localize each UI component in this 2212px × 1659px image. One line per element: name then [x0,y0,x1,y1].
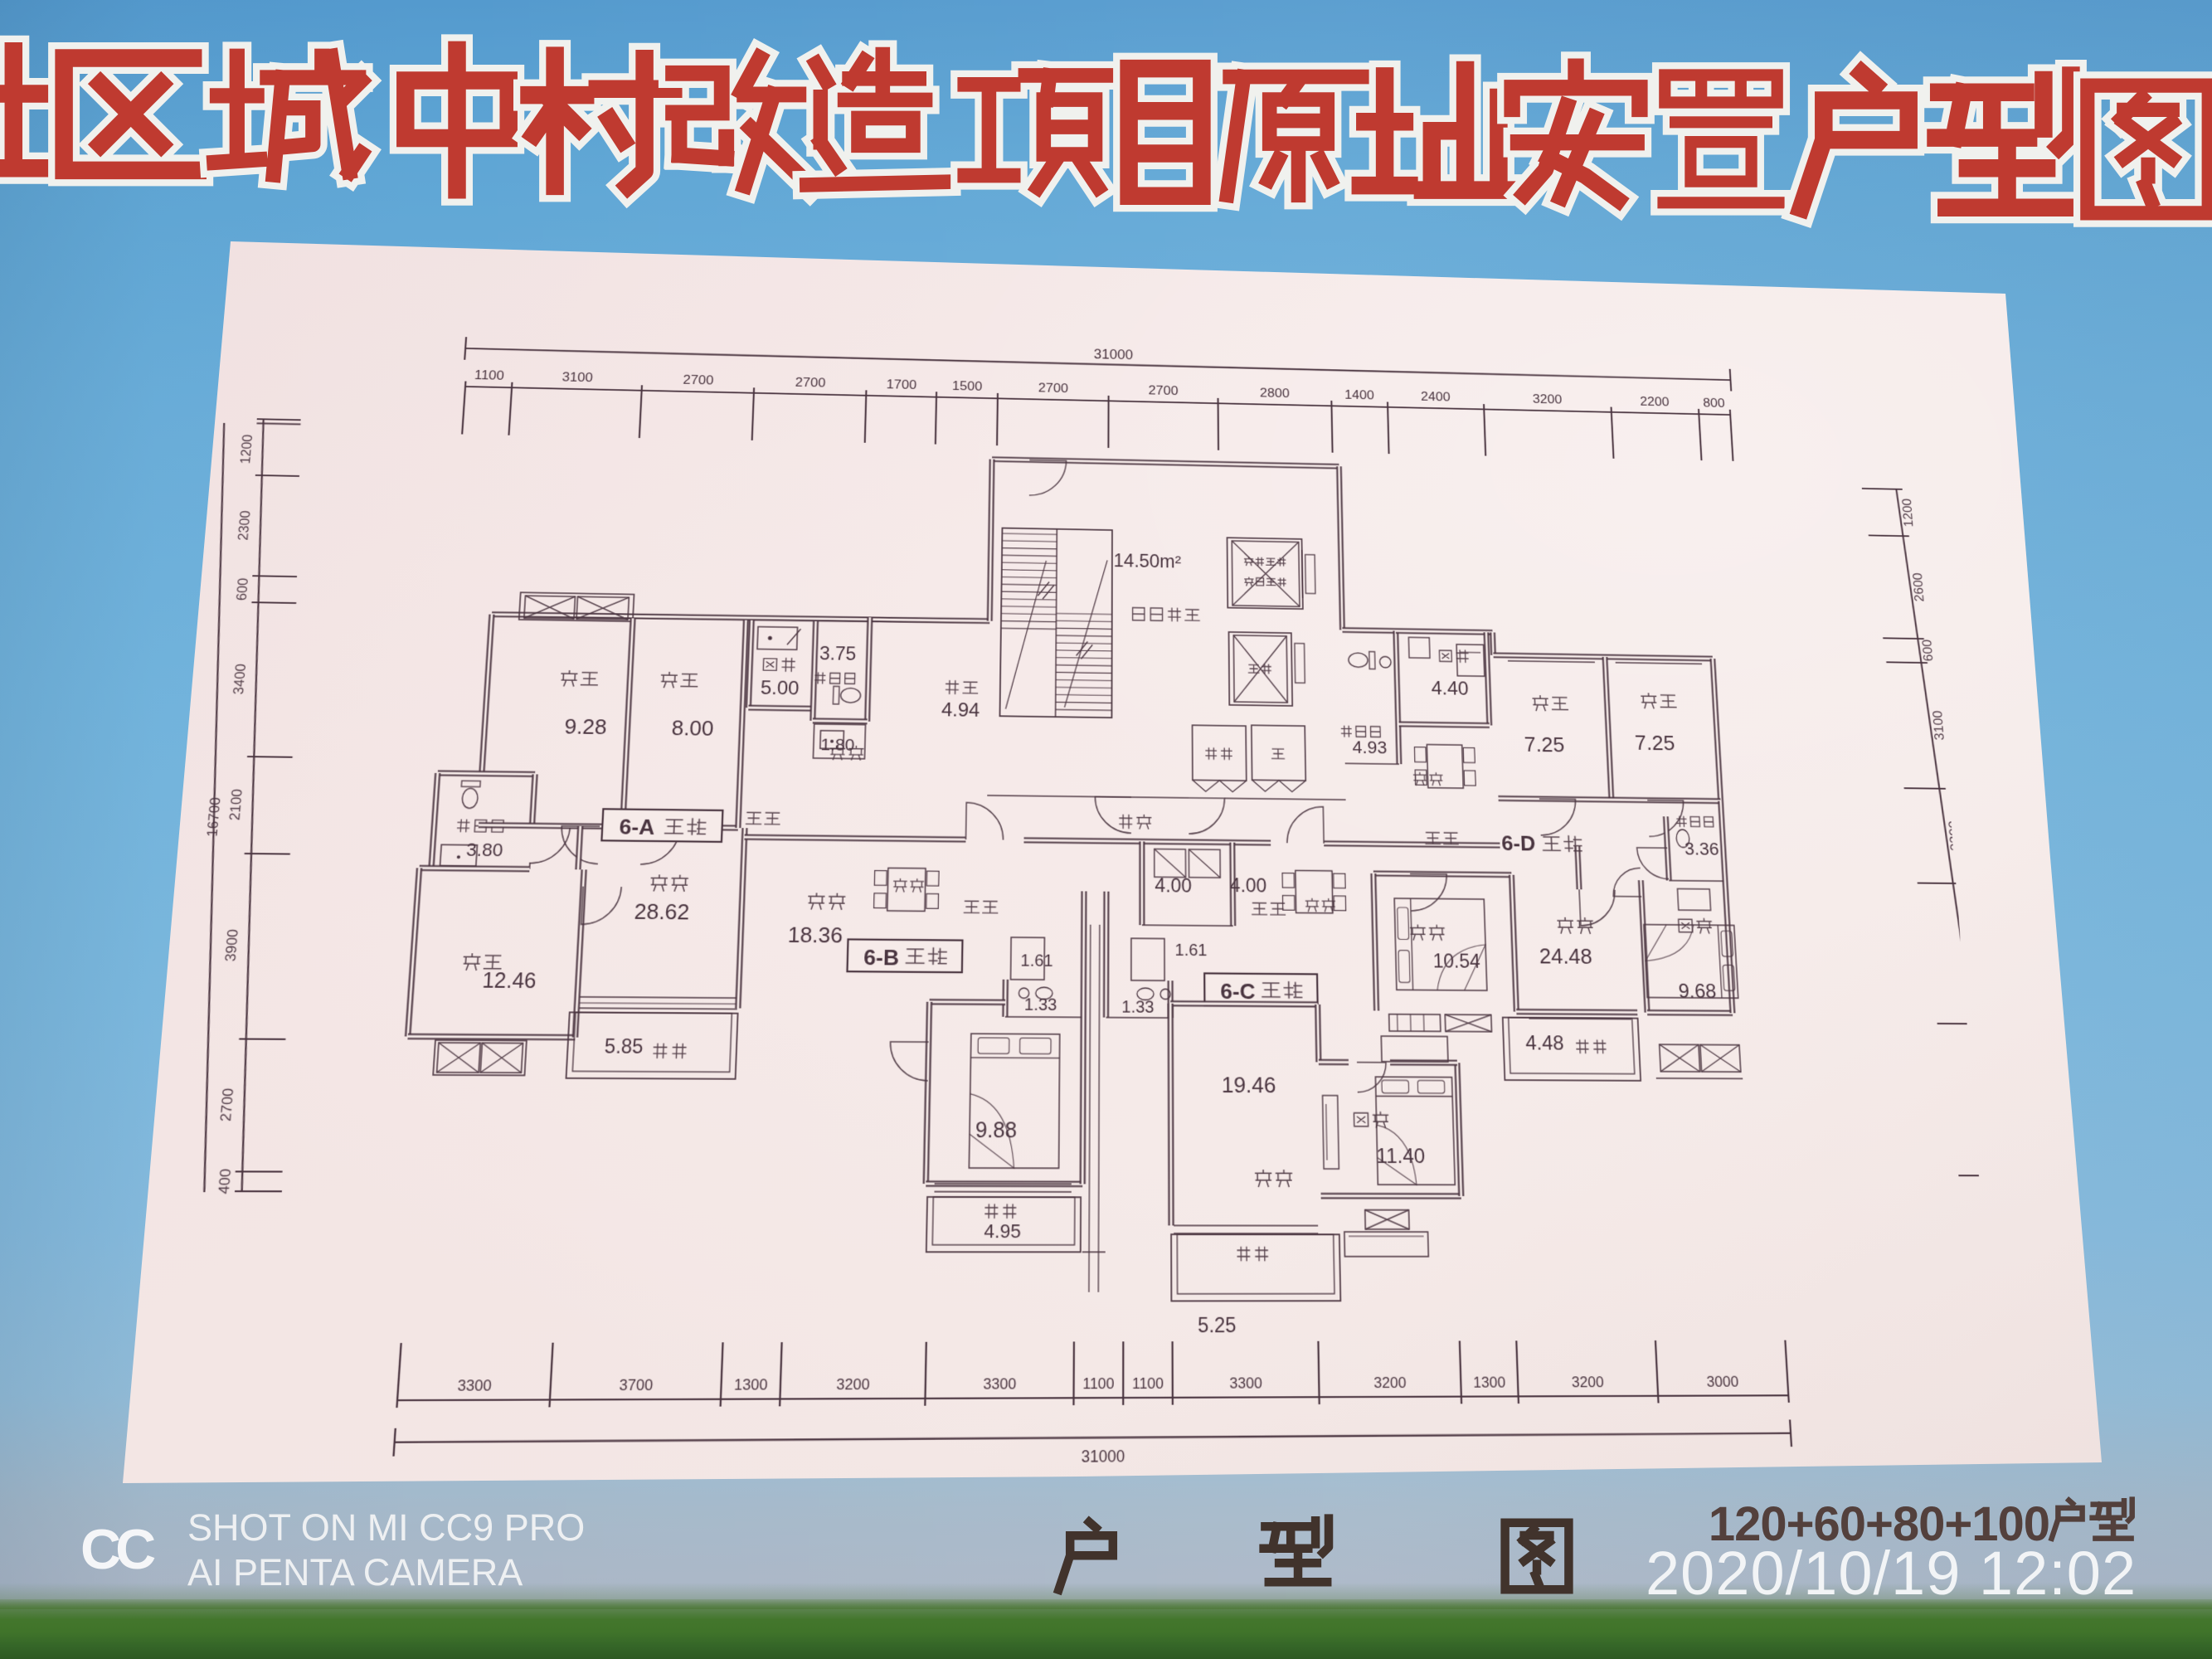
svg-text:2800: 2800 [1260,386,1290,401]
svg-text:2700: 2700 [1149,383,1179,398]
svg-text:3100: 3100 [562,370,593,385]
svg-text:6-D: 6-D [1501,832,1536,855]
svg-text:2200: 2200 [1640,394,1670,409]
svg-text:9.28: 9.28 [564,716,608,740]
svg-text:600: 600 [1919,640,1936,662]
svg-text:8.00: 8.00 [671,717,714,741]
svg-text:19.46: 19.46 [1222,1073,1276,1098]
svg-text:1500: 1500 [952,379,983,394]
svg-text:400: 400 [216,1169,235,1194]
svg-text:6-B: 6-B [863,946,899,971]
svg-text:4.00: 4.00 [1230,874,1267,897]
svg-text:1100: 1100 [474,367,504,382]
svg-text:11.40: 11.40 [1376,1144,1425,1168]
svg-text:4.93: 4.93 [1352,737,1387,757]
svg-text:5.85: 5.85 [604,1035,644,1058]
svg-text:1.61: 1.61 [1175,941,1208,961]
svg-text:1100: 1100 [1082,1375,1114,1393]
svg-text:2300: 2300 [235,510,253,540]
svg-text:5.25: 5.25 [1198,1313,1236,1337]
svg-text:1700: 1700 [887,377,917,392]
svg-text:AI PENTA CAMERA: AI PENTA CAMERA [187,1551,523,1593]
svg-text:1.61: 1.61 [1020,951,1053,971]
svg-text:2700: 2700 [683,372,714,387]
svg-text:3.80: 3.80 [465,840,503,861]
svg-text:14.50m²: 14.50m² [1114,550,1181,572]
svg-text:3700: 3700 [619,1377,654,1394]
svg-text:18.36: 18.36 [787,923,843,948]
svg-text:1.33: 1.33 [1121,998,1154,1017]
svg-text:1200: 1200 [1899,499,1916,528]
svg-text:16700: 16700 [204,797,224,837]
svg-text:3300: 3300 [983,1375,1016,1393]
svg-text:3200: 3200 [836,1376,870,1394]
svg-text:6-C: 6-C [1220,980,1255,1004]
svg-text:24.48: 24.48 [1539,945,1592,969]
svg-text:4.94: 4.94 [941,698,980,721]
svg-text:3.36: 3.36 [1685,839,1720,859]
svg-text:7.25: 7.25 [1634,732,1675,755]
svg-text:1400: 1400 [1344,387,1374,402]
svg-text:2400: 2400 [1421,389,1451,404]
svg-text:9.68: 9.68 [1678,979,1717,1002]
svg-text:4.95: 4.95 [984,1221,1021,1243]
svg-text:SHOT ON MI CC9 PRO: SHOT ON MI CC9 PRO [187,1506,585,1549]
svg-text:7.25: 7.25 [1524,733,1565,757]
svg-text:2100: 2100 [226,789,246,820]
svg-text:4.40: 4.40 [1431,677,1469,699]
svg-text:4.48: 4.48 [1525,1031,1564,1054]
svg-text:3000: 3000 [1706,1374,1738,1391]
svg-text:1300: 1300 [734,1376,768,1394]
svg-text:4.00: 4.00 [1155,874,1192,897]
svg-text:2700: 2700 [217,1088,237,1121]
svg-text:6-A: 6-A [619,815,655,839]
svg-text:12.46: 12.46 [482,970,537,994]
svg-text:3400: 3400 [231,664,250,695]
svg-text:28.62: 28.62 [634,900,690,925]
svg-text:600: 600 [233,578,251,601]
svg-text:800: 800 [1703,396,1725,411]
svg-text:1200: 1200 [237,435,255,465]
svg-text:2700: 2700 [795,375,826,390]
svg-text:CC: CC [80,1518,155,1581]
svg-text:3200: 3200 [1572,1374,1604,1391]
svg-text:9.88: 9.88 [975,1119,1017,1143]
svg-text:2020/10/19 12:02: 2020/10/19 12:02 [1646,1539,2137,1608]
svg-text:3900: 3900 [222,929,241,961]
svg-text:10.54: 10.54 [1432,950,1480,972]
svg-text:3.75: 3.75 [819,643,857,664]
svg-text:3200: 3200 [1533,392,1563,406]
svg-text:1.80: 1.80 [820,736,854,755]
svg-text:1300: 1300 [1473,1374,1505,1392]
svg-text:1100: 1100 [1132,1375,1164,1393]
svg-text:2700: 2700 [1038,381,1068,396]
svg-text:5.00: 5.00 [760,676,799,698]
svg-text:31000: 31000 [1094,347,1133,362]
svg-text:2600: 2600 [1910,572,1927,601]
svg-text:3300: 3300 [1229,1374,1262,1392]
svg-text:3300: 3300 [457,1377,492,1394]
svg-text:3200: 3200 [1373,1374,1406,1392]
